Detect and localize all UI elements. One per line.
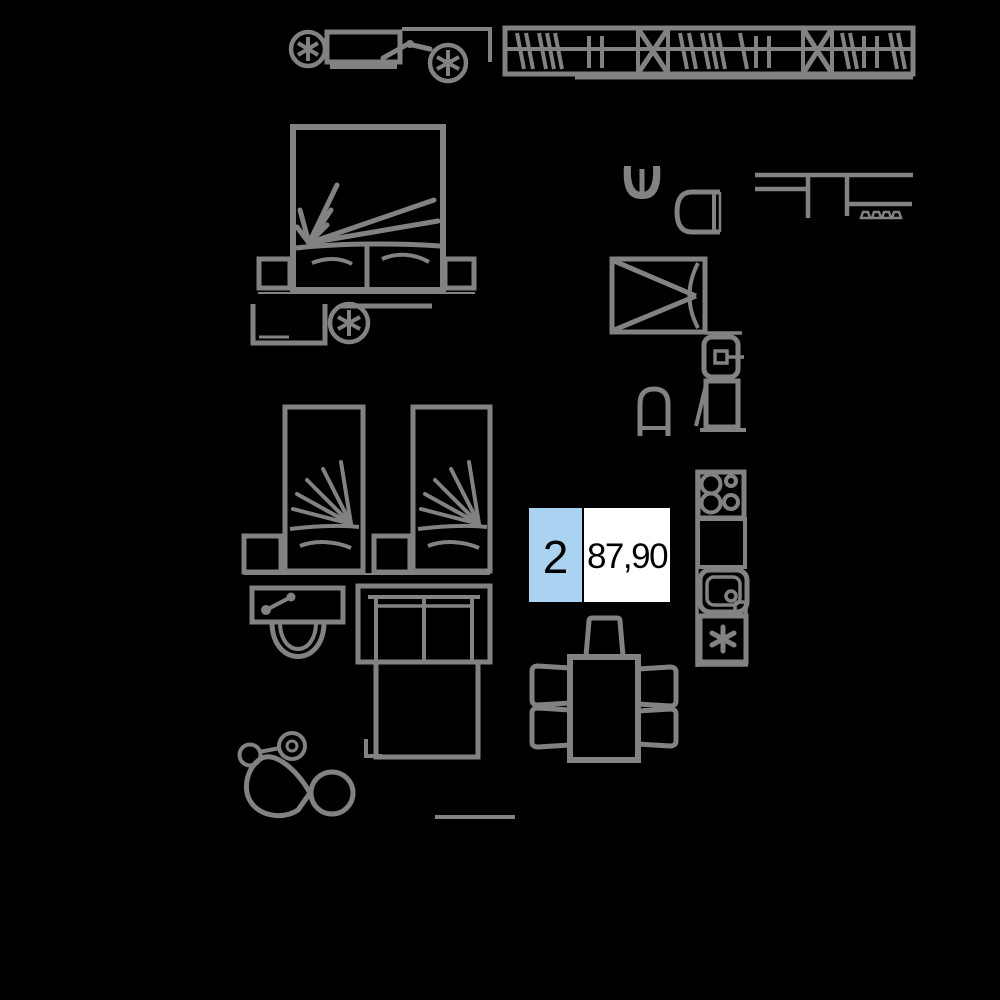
wardrobe-icon xyxy=(505,28,913,78)
bedside-cabinet-right-icon xyxy=(374,536,410,572)
desk-icon xyxy=(253,304,432,343)
toilet-bowl-icon xyxy=(677,192,720,232)
kitchen-sink-icon xyxy=(700,570,747,615)
pram-side-icon xyxy=(291,29,490,81)
double-bed-icon xyxy=(293,127,443,290)
bedside-cabinet-left-icon xyxy=(244,536,281,572)
kitchen-counter-icon xyxy=(755,175,913,218)
floor-plan: 2 87,90 xyxy=(0,0,1000,1000)
washbasin-icon xyxy=(624,166,661,199)
water-heater-icon xyxy=(696,381,746,430)
nightstand-right-icon xyxy=(445,259,474,288)
stove-icon xyxy=(698,472,744,518)
shower-cabin-icon xyxy=(612,259,742,333)
single-bed-right-icon xyxy=(413,407,490,571)
stroller-icon xyxy=(240,733,383,816)
dining-table-icon xyxy=(570,657,638,760)
single-bed-left-icon xyxy=(285,407,363,571)
unit-badge[interactable]: 2 87,90 xyxy=(527,506,672,604)
stool-icon xyxy=(330,304,368,342)
unit-number: 2 xyxy=(529,508,584,602)
unit-area: 87,90 xyxy=(584,508,670,602)
toilet-icon xyxy=(252,588,343,657)
dishwasher-icon xyxy=(700,616,746,662)
wall-toilet-icon xyxy=(640,389,668,436)
kitchen-cabinet-icon xyxy=(698,519,745,567)
dining-chair-icon xyxy=(532,618,676,747)
nightstand-left-icon xyxy=(259,259,290,288)
floor-plan-drawing xyxy=(0,0,1000,1000)
washing-machine-icon xyxy=(704,337,744,377)
sofa-bed-icon xyxy=(358,586,490,757)
